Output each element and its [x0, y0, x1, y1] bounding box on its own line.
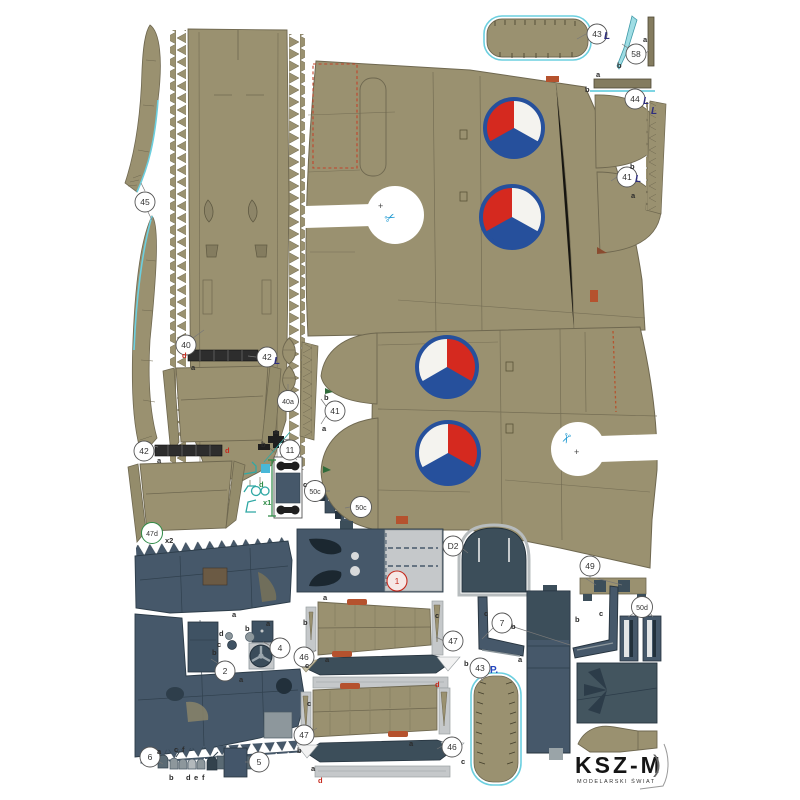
badge-50c2: 50c [351, 497, 372, 518]
label-46ud: d [435, 680, 440, 689]
wingtip-41-b [321, 333, 377, 404]
serrated-strip-40a [300, 342, 318, 440]
badge-46u: 46 [294, 647, 314, 667]
badge-1: 1 [387, 571, 407, 591]
part-50d-pieces [620, 616, 661, 661]
badge-47l: 47 [294, 725, 314, 745]
label-46lc: c [461, 757, 465, 766]
badge-42a-label: 42 [262, 352, 272, 362]
badge-47d-label: 47d [146, 531, 158, 538]
badge-7-label: 7 [500, 618, 505, 628]
badge-49-label: 49 [585, 561, 595, 571]
badge-7: 7 [492, 613, 512, 633]
L-mark: L [651, 106, 657, 117]
label-6e: e [194, 773, 198, 782]
badge-47d: 47d [142, 523, 163, 544]
part-44-strip [590, 79, 655, 91]
label-58b: b [617, 61, 622, 70]
part-43-pad [471, 673, 521, 785]
L-mark: L [643, 96, 649, 107]
label-47uc: c [435, 611, 439, 620]
label-6d: d [186, 773, 191, 782]
plus-mark: + [574, 447, 579, 457]
badge-50d: 50d [632, 597, 653, 618]
part-7-right [573, 586, 618, 658]
label-42bd: d [225, 446, 230, 455]
label-jig-x1: x1 [263, 498, 271, 507]
L-mark: L [635, 174, 641, 185]
part-42a-spar [188, 350, 258, 361]
badge-41m-label: 41 [330, 406, 340, 416]
label-11b: b [261, 440, 266, 449]
strip-45-lower [132, 216, 157, 455]
badge-45: 45 [135, 192, 155, 212]
label-6f2: f [202, 773, 205, 782]
label-43-P: P. [490, 665, 498, 676]
label-6c: c [174, 745, 178, 754]
stab-47-upper [306, 599, 443, 657]
badge-41m: 41 [325, 401, 345, 421]
label-46ub: b [464, 659, 469, 668]
label-6b: b [169, 773, 174, 782]
L-mark: L [274, 356, 280, 367]
badge-42b-label: 42 [139, 446, 149, 456]
label-7b1: b [511, 622, 516, 631]
badge-40-label: 40 [181, 340, 191, 350]
label-41mb: b [324, 393, 329, 402]
badge-44: 44 [625, 89, 645, 109]
fuselage-skin-upper-slate [135, 537, 292, 613]
logo-title: KSZ-M [575, 752, 663, 778]
cowl-piece [578, 726, 657, 752]
label-47ub: b [303, 618, 308, 627]
badge-1-label: 1 [395, 576, 400, 586]
badge-43p: 43 [470, 658, 490, 678]
badge-5-label: 5 [257, 757, 262, 767]
part-7-column-a [527, 585, 570, 760]
part-2 [188, 622, 218, 672]
badge-58-label: 58 [631, 49, 641, 59]
badge-49: 49 [580, 556, 600, 576]
badge-46l: 46 [442, 737, 462, 757]
label-47lc: c [307, 699, 311, 708]
serrated-strip-right [646, 101, 666, 214]
badge-58: 58 [626, 44, 646, 64]
logo-bracket: ) [653, 751, 661, 778]
model-parts-sheet: 45 40 42 40a 41 42 47d 11 50c 50c 43 58 … [0, 0, 800, 800]
label-46ld: d [318, 776, 323, 785]
label-41ma: a [322, 424, 327, 433]
upper-wing-skin [305, 61, 645, 336]
label-47d-x2: x2 [165, 536, 173, 545]
badge-11: 11 [280, 440, 300, 460]
badge-D2: D2 [443, 536, 463, 556]
part-43-top [484, 16, 591, 60]
parts-artwork: 45 40 42 40a 41 42 47d 11 50c 50c 43 58 … [0, 0, 800, 800]
roundel [417, 337, 477, 397]
label-jig-d: d [259, 480, 264, 489]
badge-50c1: 50c [305, 481, 326, 502]
badge-45-label: 45 [140, 197, 150, 207]
badge-43t-label: 43 [592, 29, 602, 39]
badge-5: 5 [249, 752, 269, 772]
plus-mark: + [378, 201, 383, 211]
badge-11-label: 11 [286, 445, 295, 455]
fan-panel [577, 663, 657, 723]
badge-50c1-label: 50c [309, 489, 321, 496]
roundel [417, 422, 479, 484]
badge-41t-label: 41 [622, 172, 632, 182]
label-46uc: c [305, 661, 309, 670]
label-41tb: b [630, 162, 635, 171]
badge-42b: 42 [134, 441, 154, 461]
label-58a: a [643, 35, 648, 44]
stab-46-lower [297, 740, 464, 777]
badge-44-label: 44 [630, 94, 640, 104]
badge-2: 2 [215, 661, 235, 681]
badge-D2-label: D2 [448, 541, 459, 551]
label-42ad: d [182, 351, 187, 360]
logo-subtitle: MODELARSKI ŚWIAT [577, 777, 656, 785]
part-4-group [226, 621, 275, 669]
label-47lb: b [297, 746, 302, 755]
label-44b: b [585, 85, 590, 94]
label-2b: b [212, 648, 217, 657]
roundel [485, 99, 543, 157]
label-4d: d [219, 629, 224, 638]
badge-50d-label: 50d [636, 605, 648, 612]
part-1-floor [297, 521, 443, 592]
roundel [481, 186, 543, 248]
badge-46l-label: 46 [447, 742, 457, 752]
label-7b2: b [575, 615, 580, 624]
label-4c: c [217, 640, 221, 649]
badge-4: 4 [270, 638, 290, 658]
label-4b: b [245, 624, 250, 633]
badge-50c2-label: 50c [355, 505, 367, 512]
label-44a: a [596, 70, 601, 79]
stab-47-lower [301, 683, 450, 742]
label-2a1: a [232, 610, 237, 619]
badge-43p-label: 43 [475, 663, 485, 673]
badge-47u: 47 [443, 631, 463, 651]
badge-40a: 40a [278, 391, 299, 412]
label-7c1: c [484, 609, 488, 618]
badge-6-label: 6 [148, 752, 153, 762]
badge-40a-label: 40a [282, 399, 294, 406]
badge-47l-label: 47 [299, 730, 309, 740]
part-42b-spar [155, 445, 222, 456]
label-7c2: c [599, 609, 603, 618]
badge-2-label: 2 [223, 666, 228, 676]
label-47ua: a [323, 593, 328, 602]
label-7a: a [518, 655, 523, 664]
L-mark: L [604, 31, 610, 42]
label-11c: c [303, 480, 307, 489]
badge-4-label: 4 [278, 643, 283, 653]
badge-47u-label: 47 [448, 636, 458, 646]
strip-45-upper [125, 25, 160, 192]
